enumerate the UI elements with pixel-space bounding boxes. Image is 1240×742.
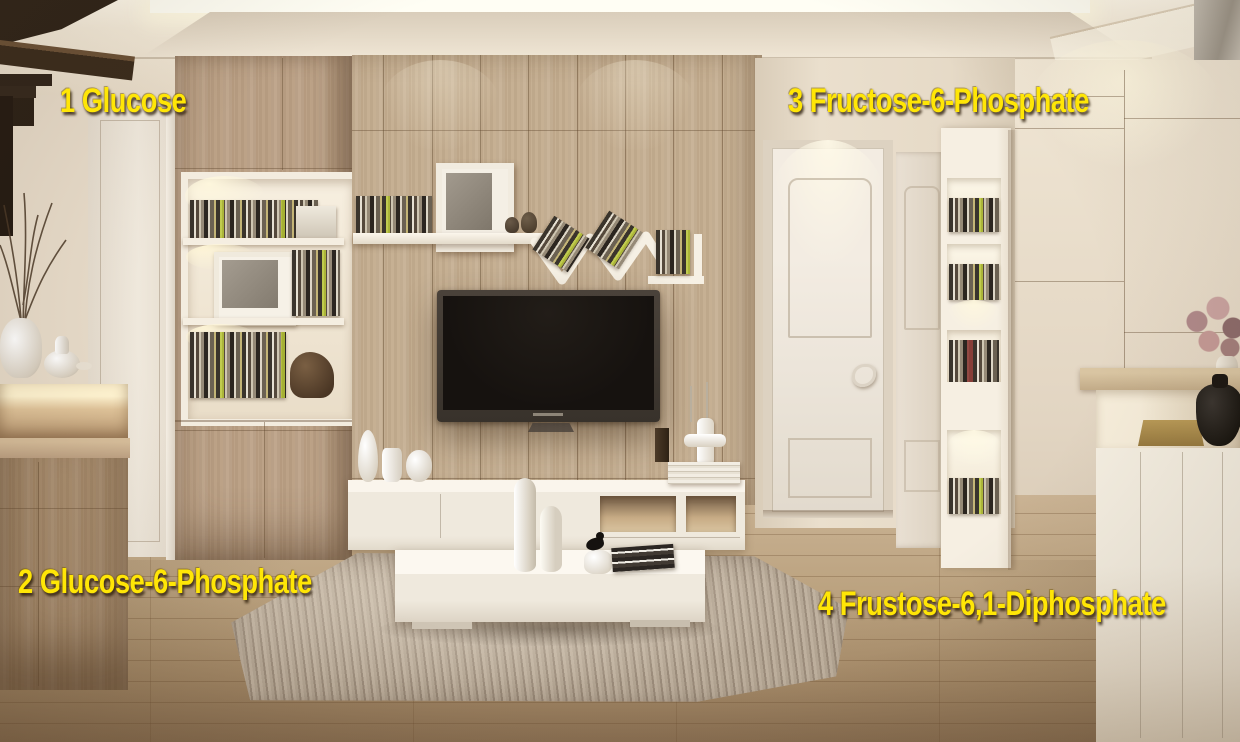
black-vase-neck [1212, 374, 1228, 388]
counter-door-seam [1222, 452, 1223, 738]
candelabra-arms [684, 434, 726, 447]
annotation-fructose-6-phosphate: 3 Fructose-6-Phosphate [788, 82, 1089, 121]
tv-logo [533, 413, 563, 416]
annotation-glucose: 1 Glucose [60, 82, 186, 121]
coffee-table-foot [412, 622, 472, 629]
hanging-shelf-bracket [0, 74, 52, 86]
sideboard-niche-light [0, 384, 128, 440]
candle-stick [690, 386, 692, 422]
bookshelf-shadow [1008, 130, 1018, 570]
books-row [292, 250, 340, 316]
annotation-glucose-6-phosphate: 2 Glucose-6-Phosphate [18, 563, 312, 602]
shelf-niche-books [949, 198, 999, 232]
stand-drawer-seam [598, 537, 740, 538]
sideboard-seam [0, 508, 128, 509]
gold-tray [1138, 420, 1204, 446]
cove-light [150, 0, 1090, 13]
panel-seam [432, 55, 433, 505]
sideboard-counter-top [0, 438, 130, 458]
wall-seam [1012, 281, 1124, 282]
door-sill-shadow [763, 510, 893, 518]
panel-seam [383, 55, 384, 505]
white-jug [584, 550, 612, 574]
book-stack [668, 462, 740, 484]
zigzag-books [656, 230, 690, 274]
door-panel-upper [788, 178, 872, 338]
annotation-frustose-61-diphosphate: 4 Frustose-6,1-Diphosphate [818, 585, 1166, 624]
ceiling-tray [140, 12, 1140, 58]
display-frame-screen [222, 260, 278, 308]
living-room-scene: 1 Glucose 2 Glucose-6-Phosphate 3 Fructo… [0, 0, 1240, 742]
wall-seam [1124, 118, 1240, 119]
black-vase [1196, 384, 1240, 446]
stand-niche [686, 496, 736, 532]
tv-screen [443, 296, 654, 410]
shelf-books [356, 196, 432, 233]
door-panel-lower [788, 438, 872, 498]
shelf-niche-books [949, 340, 999, 382]
floating-shelf [353, 233, 545, 244]
bookcase-seam [282, 58, 283, 170]
flower-arrangement [1185, 295, 1240, 361]
corner-door-panel [904, 440, 940, 492]
panel-seam [352, 130, 762, 131]
stand-vase-round [406, 450, 432, 482]
stand-door-seam [440, 494, 441, 538]
stand-niche [600, 496, 676, 532]
bookcase-seam [175, 430, 352, 431]
gourd-vase-neck [55, 336, 69, 354]
books-row [190, 332, 286, 398]
round-vase [0, 318, 42, 378]
picture-frame-canvas [446, 173, 492, 230]
wall-seam [1012, 128, 1124, 129]
bookcase-seam [264, 422, 265, 558]
shelf-niche-books [949, 264, 999, 300]
stand-vase-lidded [382, 448, 402, 482]
table-vase-short [540, 506, 562, 572]
counter-door-seam [1182, 452, 1183, 738]
bookcase-seam [175, 168, 352, 169]
table-vase-tall [514, 478, 536, 572]
gourd-vase [44, 350, 80, 378]
niche-shelf [183, 238, 344, 245]
vase-spout [76, 362, 92, 370]
hanging-shelf-bracket [12, 98, 34, 126]
coffee-table-foot [630, 620, 690, 627]
magazine-stack [611, 544, 675, 572]
tv-mount [528, 423, 574, 432]
storage-box [296, 206, 336, 238]
branches [0, 185, 90, 335]
niche-shelf [183, 318, 344, 325]
shelf-niche-books [949, 478, 999, 514]
dark-candleholder [655, 428, 669, 462]
wall-seam [1124, 70, 1125, 400]
corner-door-panel [904, 186, 940, 330]
bird-figurine-head [596, 532, 604, 540]
mini-vase [505, 217, 519, 233]
candle-stick [706, 382, 708, 422]
panel-seam [480, 55, 481, 505]
